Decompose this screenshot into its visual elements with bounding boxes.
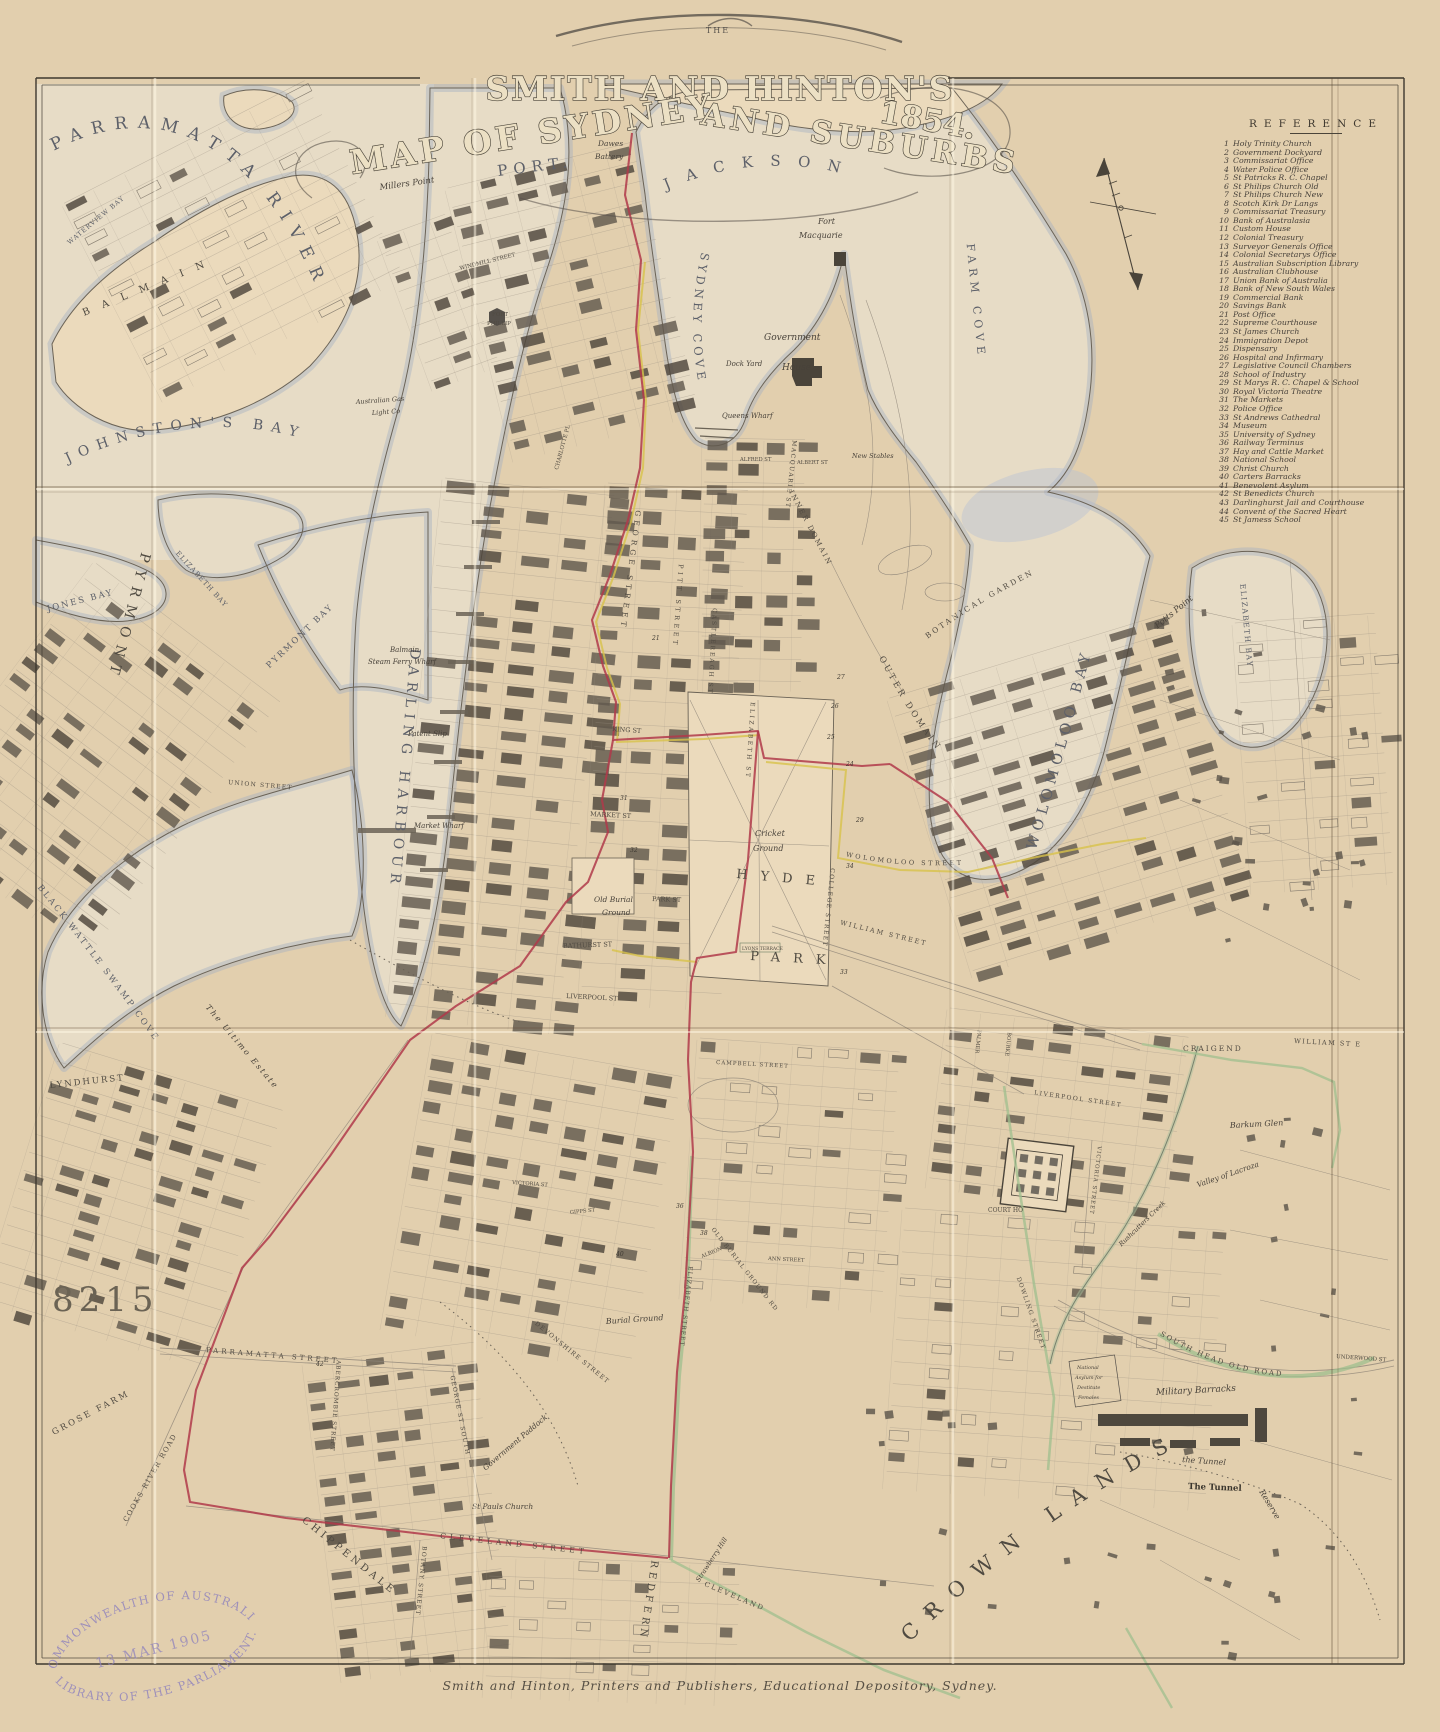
wharf (464, 565, 492, 569)
reference-rule (1290, 133, 1342, 134)
map-label: Ground (602, 908, 631, 917)
publisher-imprint: Smith and Hinton, Printers and Publisher… (0, 1678, 1440, 1693)
road-line (1100, 1500, 1240, 1560)
map-label: FORT (492, 312, 508, 318)
map-label: Macquarie (798, 231, 843, 240)
compass-rose (1090, 158, 1156, 290)
reference-item: 45St Jamess School (1216, 516, 1416, 525)
map-label: GROSE FARM (51, 1389, 132, 1438)
map-label: Burial Ground (605, 1313, 664, 1326)
map-label: Old Burial (594, 895, 634, 904)
garden-bed (875, 539, 936, 581)
map-label: Asylum for (1074, 1375, 1103, 1381)
old-burial-ground (572, 858, 634, 914)
map-reference-number: 29 (855, 817, 864, 824)
dotted-boundary (1300, 1504, 1380, 1620)
map-label: WILLIAM STREET (839, 919, 928, 948)
library-stamp: COMMONWEALTH OF AUSTRALIA 13 MAR 1905 LI… (34, 1567, 273, 1724)
map-label: National (1076, 1365, 1099, 1371)
map-label: VICTORIA STREET (1088, 1145, 1102, 1215)
road-line (832, 986, 1024, 1094)
map-label: DOWLING STREET (1015, 1276, 1047, 1350)
map-label: CRAIGEND (1183, 1044, 1243, 1053)
map-label: PARK ST (652, 895, 682, 904)
road-line (1240, 1150, 1390, 1190)
reference-list: 1Holy Trinity Church2Government Dockyard… (1216, 140, 1416, 525)
map-label: Military Barracks (1155, 1384, 1237, 1398)
map-label: CAMPBELL STREET (716, 1060, 789, 1070)
map-reference-number: 31 (620, 795, 628, 802)
map-label: Barkum Glen (1229, 1118, 1284, 1130)
military-barracks-building (1098, 1414, 1248, 1426)
map-label: REDFERN (636, 1560, 659, 1642)
map-label: Ground (753, 844, 783, 853)
map-label: The Ultimo Estate (204, 1003, 281, 1091)
map-label: WILLIAM ST E (1294, 1037, 1362, 1049)
map-label: the Tunnel (1182, 1455, 1227, 1467)
map-label: CLEVELAND (703, 1580, 766, 1612)
map-label: Reserve (1257, 1487, 1282, 1521)
map-reference-number: 21 (651, 635, 660, 642)
map-reference-number: 25 (826, 734, 835, 741)
park-oval (688, 1078, 778, 1132)
map-label: House (781, 363, 811, 373)
map-reference-number: 32 (630, 847, 638, 854)
map-label: New Stables (851, 452, 894, 460)
map-reference-number: 33 (840, 969, 848, 976)
accession-number: 8215 (52, 1280, 159, 1320)
map-label: LYONS TERRACE (742, 946, 783, 952)
wharf (440, 710, 468, 714)
map-label: Battery (594, 152, 624, 161)
city-blocks (679, 1038, 915, 1315)
dotted-boundary (440, 1302, 578, 1486)
road-line (1200, 900, 1360, 980)
map-label: Patent Slip (407, 730, 447, 738)
map-label: Market Wharf (413, 822, 465, 830)
map-label: COOKS RIVER ROAD (122, 1432, 179, 1523)
map-label: LYNDHURST (49, 1073, 125, 1091)
map-sheet: PARRAMATTA RIVERWATERVIEW BAYB A L M A I… (0, 0, 1440, 1732)
map-label: INNER DOMAIN (787, 489, 833, 567)
map-label: BATHURST ST (563, 940, 613, 950)
road-line (1230, 1230, 1388, 1260)
map-reference-number: 34 (846, 863, 854, 870)
map-reference-number: 24 (845, 761, 854, 768)
map-label: Females (1077, 1395, 1099, 1401)
map-label: CHIPPENDALE (300, 1515, 399, 1597)
reference-heading: REFERENCE (1216, 118, 1416, 130)
map-label: OLD BURIAL GROUND RD (710, 1227, 779, 1313)
map-pretitle: THE (706, 26, 730, 35)
map-label: COURT HO (988, 1207, 1023, 1214)
map-label: Dock Yard (725, 360, 763, 368)
map-label: Queens Wharf (722, 412, 774, 420)
map-label: ALFRED ST (739, 457, 772, 463)
map-label: ALBERT ST (796, 460, 828, 466)
map-label: BOURKE (1003, 1032, 1011, 1057)
route-green (1126, 1628, 1172, 1708)
fort-macquarie-building (834, 252, 846, 266)
map-label: CHARLOTTE PL (554, 424, 572, 470)
map-label: LIVERPOOL ST (566, 992, 618, 1003)
reference-item-label: St Jamess School (1233, 516, 1301, 525)
map-label: Balmain (389, 646, 420, 654)
map-label: St Pauls Church (472, 1502, 533, 1511)
map-label: ALBION (700, 1246, 724, 1260)
wharf (434, 760, 462, 764)
map-label: PITT STREET (671, 564, 685, 648)
map-label: Cricket (755, 829, 786, 838)
map-reference-number: 42 (315, 1361, 324, 1368)
map-label: PALMER (973, 1030, 982, 1055)
map-label: Government (764, 333, 821, 343)
map-reference-number: 38 (700, 1230, 708, 1237)
map-label: CROWN LANDS (896, 1427, 1185, 1646)
map-reference-number: 27 (836, 674, 845, 681)
map-reference-number: 40 (615, 1251, 624, 1258)
map-label: PHILLIP (487, 321, 511, 327)
map-label: BOTANY STREET (414, 1546, 428, 1616)
map-label: Destitute (1076, 1385, 1100, 1391)
route-green (1142, 1044, 1340, 1168)
hyde-park (688, 692, 834, 986)
market-wharf (358, 828, 416, 833)
road-line (1260, 1300, 1390, 1330)
wharf (456, 612, 484, 616)
map-label: Government Paddock (481, 1412, 549, 1472)
route-yellow (612, 950, 697, 962)
map-label: LIVERPOOL STREET (1034, 1089, 1123, 1109)
wharf (420, 868, 448, 872)
title-flourish (708, 19, 752, 27)
map-label: UNION STREET (228, 779, 293, 791)
darlinghurst-gaol (1000, 1138, 1074, 1212)
map-reference-number: 36 (676, 1203, 684, 1210)
map-label: ANN STREET (767, 1256, 805, 1264)
city-blocks (882, 1208, 1233, 1513)
map-artwork: PARRAMATTA RIVERWATERVIEW BAYB A L M A I… (0, 80, 1414, 1708)
reference-legend: REFERENCE 1Holy Trinity Church2Governmen… (1216, 118, 1416, 525)
garden-bed (925, 583, 965, 601)
map-label: Fort (817, 217, 836, 226)
map-label: Steam Ferry Wharf (368, 658, 437, 666)
map-label: The Tunnel (1188, 1482, 1243, 1494)
wharf (427, 815, 455, 819)
map-label: ABERCROMBIE STREET (328, 1359, 341, 1452)
map-label: Valley of Lacroza (1196, 1159, 1260, 1189)
reference-item-number: 45 (1216, 516, 1229, 525)
map-label: GIPPS ST (570, 1207, 596, 1216)
map-reference-number: 26 (830, 703, 839, 710)
road-line (1250, 1440, 1392, 1480)
